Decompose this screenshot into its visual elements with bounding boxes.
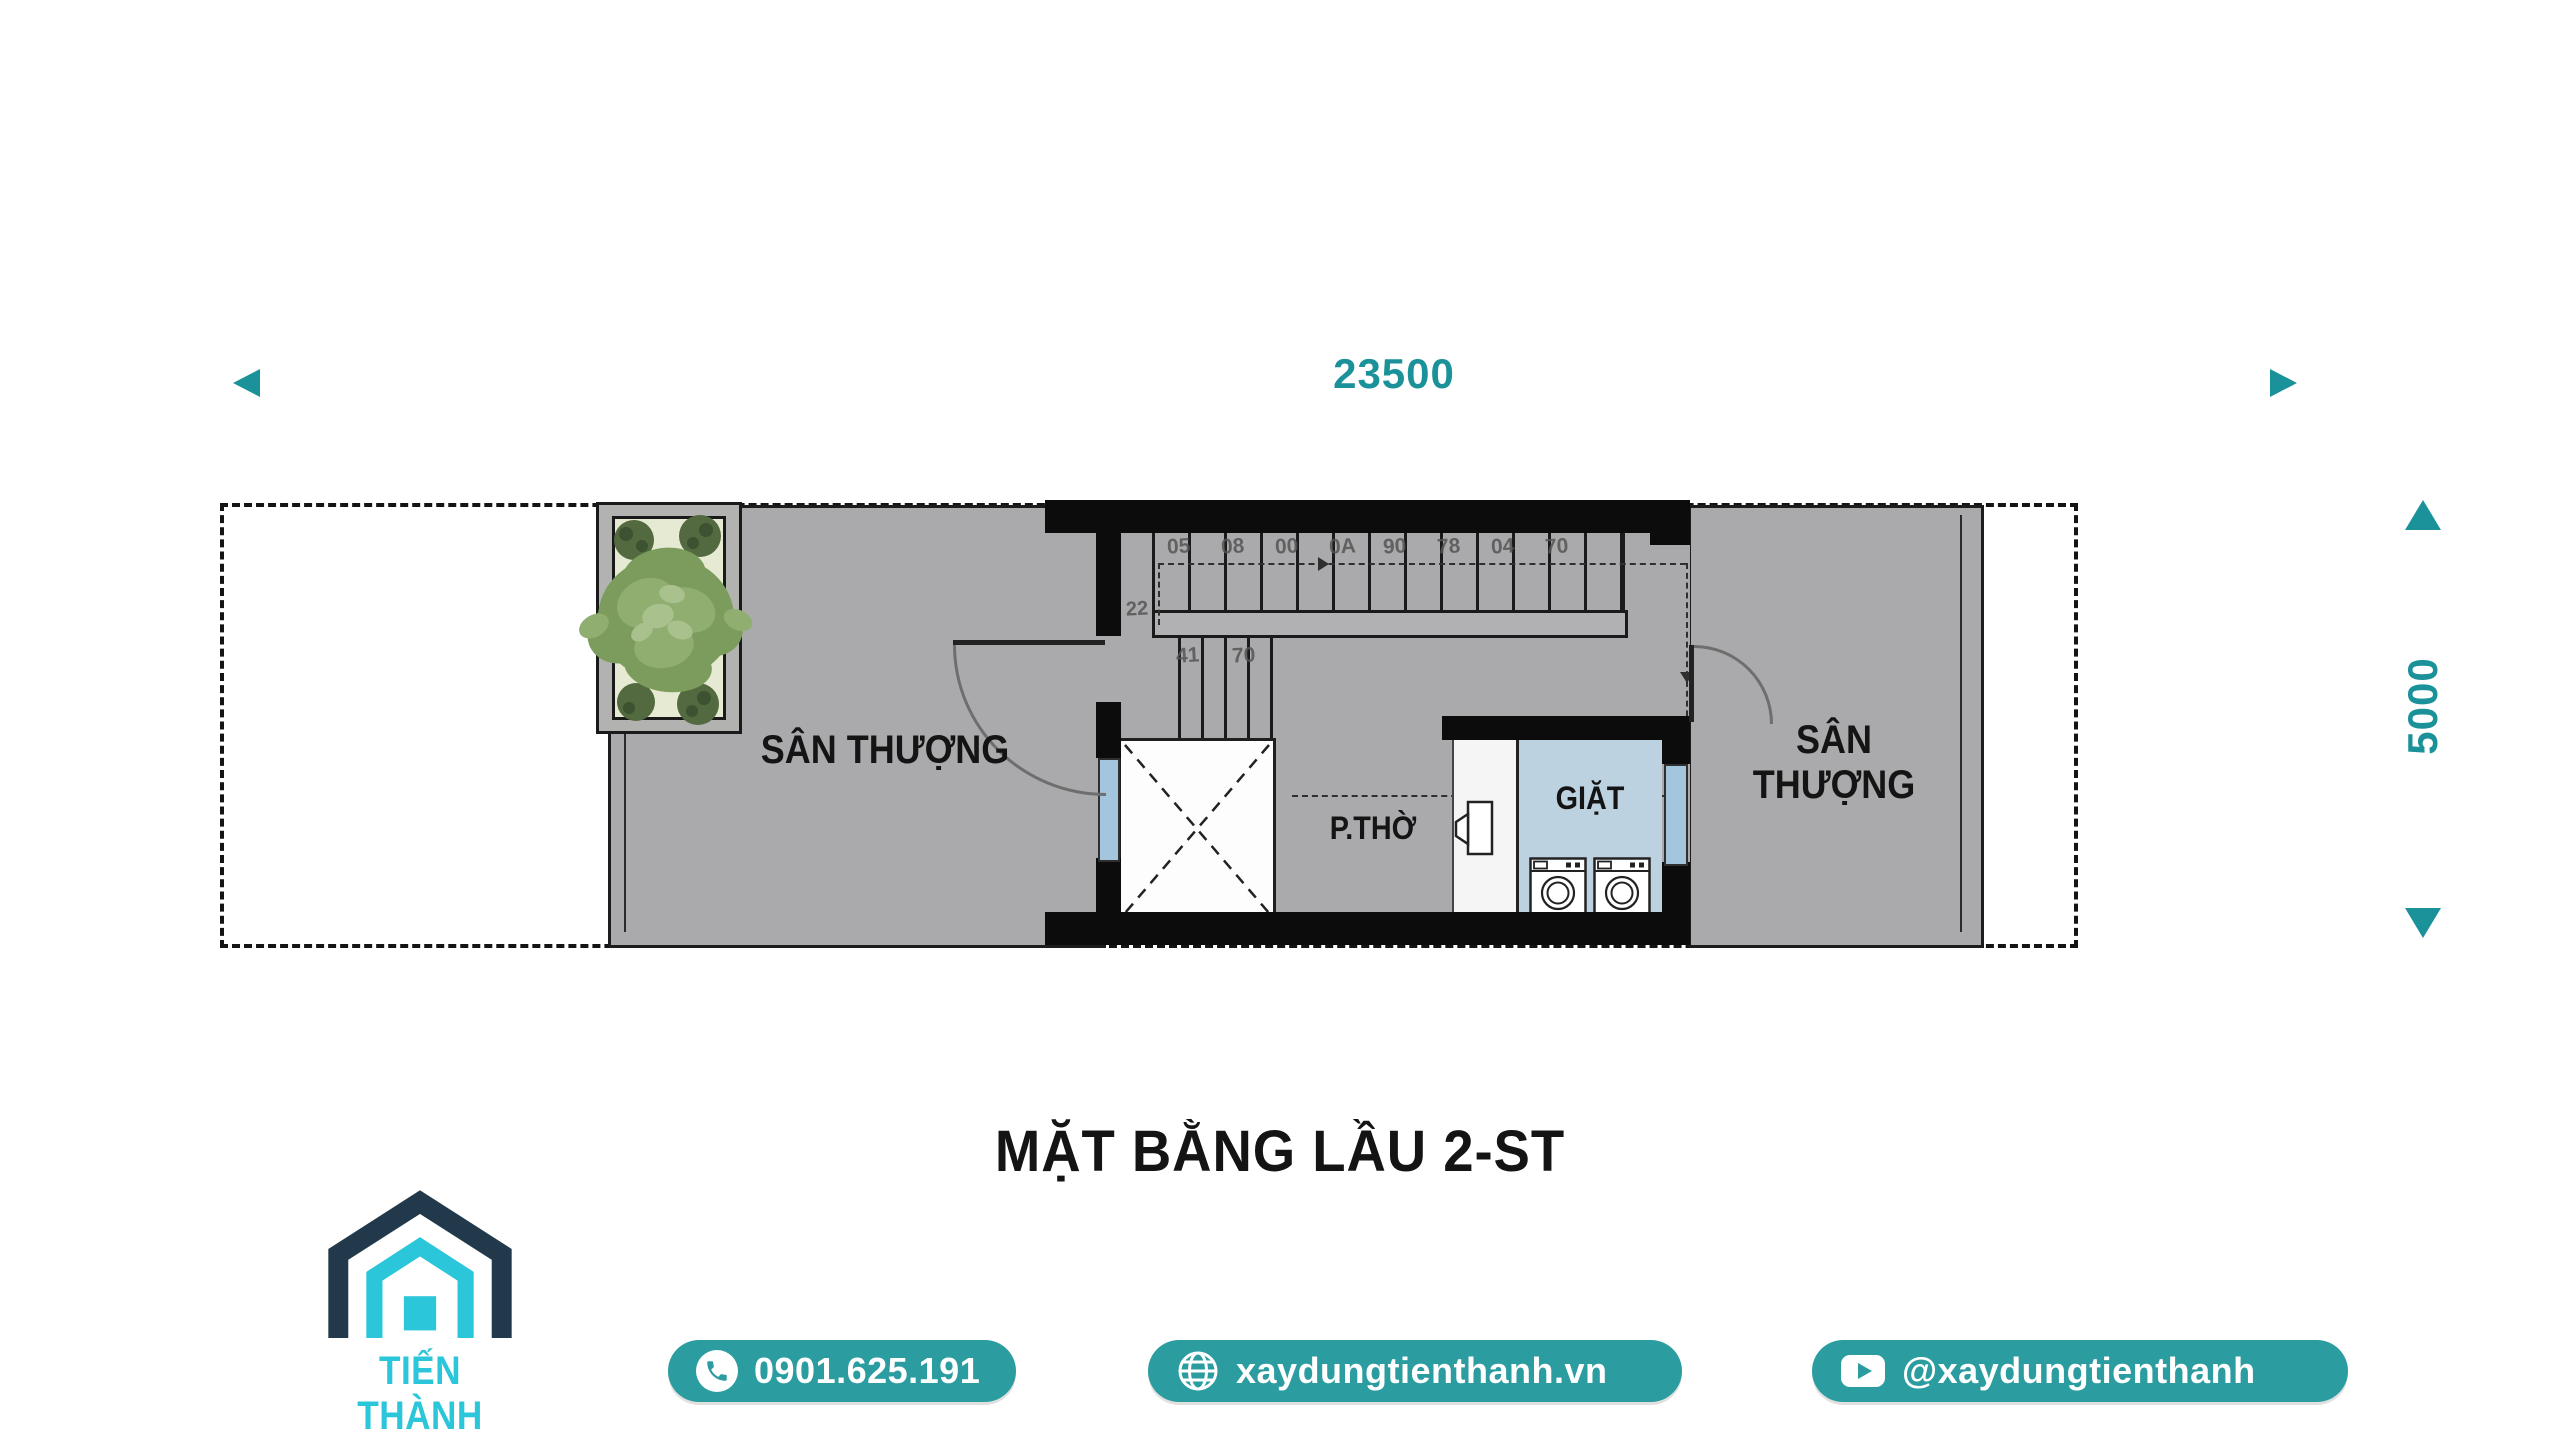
stair-path-left [1158,563,1160,625]
dim-width-label: 23500 [1294,350,1494,398]
youtube-play-icon [1840,1354,1886,1388]
stair-number: 0A [1328,534,1356,559]
floor-plan-page: 23500 5000 05 08 00 0A 90 78 04 70 41 70… [0,0,2560,1439]
house-outline-icon [298,1186,542,1338]
stair-number: 70 [1544,534,1569,559]
youtube-handle: @xaydungtienthanh [1902,1350,2256,1392]
brand-logo: TIẾN THÀNH [298,1186,542,1439]
stair-landing-number: 22 [1125,597,1148,621]
dim-arrow-right-icon [2270,369,2297,397]
stair-number: 78 [1436,534,1461,559]
brand-name: TIẾN THÀNH [313,1349,528,1439]
wall-right-low [1662,862,1690,914]
dim-height-label: 5000 [2383,641,2463,771]
stair-number: 05 [1166,534,1191,559]
globe-icon [1176,1349,1220,1393]
wall-left-low [1096,858,1121,914]
dim-arrow-down-icon [2405,908,2441,938]
washing-machine-icon [1593,857,1651,915]
plant-foliage-icon [576,498,756,738]
washing-machine-icon [1529,857,1587,915]
dim-arrow-up-icon [2405,500,2441,530]
terrace-left-label: SÂN THƯỢNG [755,728,1016,773]
wall-laundry-top [1442,716,1690,740]
stair-path-top [1158,563,1686,565]
page-title: MẶT BẰNG LẦU 2-ST [960,1118,1599,1185]
stair-path-arrow-right-icon [1318,557,1329,571]
phone-button[interactable]: 0901.625.191 [668,1340,1016,1402]
stair-number: 04 [1490,534,1515,559]
stair-number: 08 [1220,534,1245,559]
void-x-icon [1121,741,1273,917]
website-button[interactable]: xaydungtienthanh.vn [1148,1340,1682,1402]
stair-number: 70 [1231,643,1256,668]
wall-right-corner [1650,533,1690,545]
void-skylight-box [1118,738,1276,920]
youtube-button[interactable]: @xaydungtienthanh [1812,1340,2348,1402]
phone-number: 0901.625.191 [754,1350,980,1392]
worship-room-label: P.THỜ [1297,810,1450,847]
website-url: xaydungtienthanh.vn [1236,1350,1608,1392]
dim-arrow-left-icon [233,369,260,397]
laundry-room-label: GIẶT [1525,780,1655,817]
terrace-right-label: SÂN THƯỢNG [1713,718,1956,808]
wall-right-hinge [1662,740,1690,764]
stair-number: 41 [1175,643,1200,668]
stair-stringer [1152,610,1628,638]
wall-bottom [1045,912,1690,945]
water-heater-icon [1452,798,1494,858]
terrace-right-parapet-line [1960,515,1962,932]
wall-top [1045,500,1690,533]
stair-number: 00 [1274,534,1299,559]
phone-icon [696,1350,738,1392]
window-right [1664,764,1688,866]
stair-number: 90 [1382,534,1407,559]
wall-left-pier [1096,533,1121,636]
